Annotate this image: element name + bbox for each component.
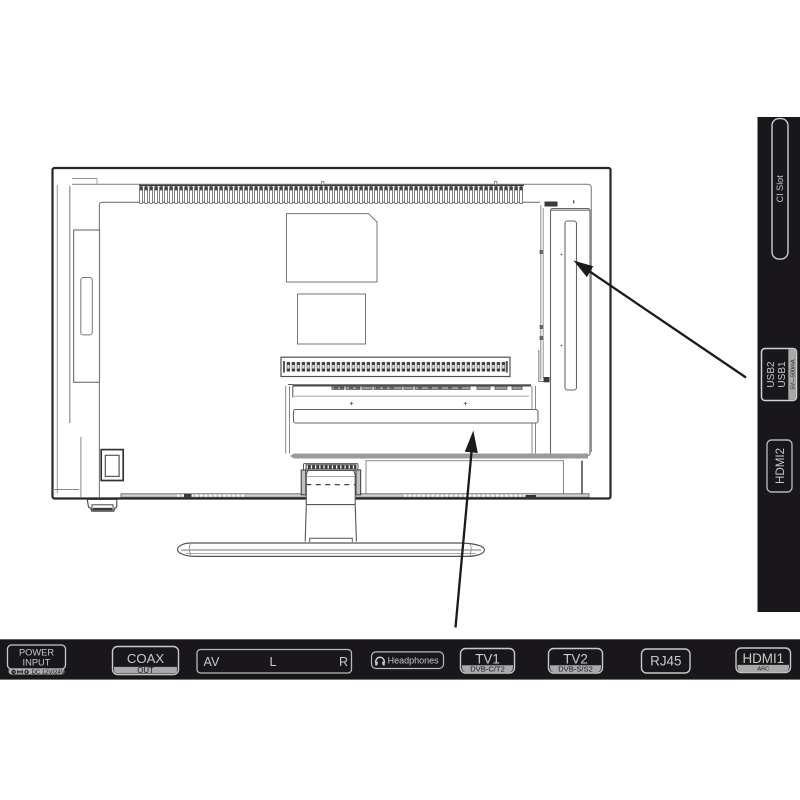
svg-text:ARC: ARC bbox=[757, 667, 769, 673]
svg-text:AV: AV bbox=[204, 655, 220, 669]
svg-text:COAX: COAX bbox=[127, 651, 165, 666]
svg-text:OUT: OUT bbox=[137, 666, 154, 675]
svg-text:DVB-C/T2: DVB-C/T2 bbox=[470, 665, 505, 674]
svg-text:INPUT: INPUT bbox=[23, 658, 51, 668]
svg-text:5V—500mA: 5V—500mA bbox=[790, 359, 796, 389]
svg-text:POWER: POWER bbox=[19, 647, 54, 657]
svg-text:HDMI1: HDMI1 bbox=[742, 651, 784, 666]
svg-text:DVB-S/S2: DVB-S/S2 bbox=[558, 665, 593, 674]
svg-text:DC 12V/24V: DC 12V/24V bbox=[32, 670, 65, 676]
svg-text:R: R bbox=[339, 655, 348, 669]
svg-text:Headphones: Headphones bbox=[388, 656, 440, 666]
svg-text:RJ45: RJ45 bbox=[650, 654, 681, 669]
svg-text:USB1: USB1 bbox=[777, 361, 788, 388]
svg-text:CI Slot: CI Slot bbox=[775, 175, 785, 203]
svg-text:HDMI2: HDMI2 bbox=[774, 448, 787, 484]
svg-text:L: L bbox=[269, 655, 276, 669]
svg-text:USB2: USB2 bbox=[766, 361, 777, 388]
